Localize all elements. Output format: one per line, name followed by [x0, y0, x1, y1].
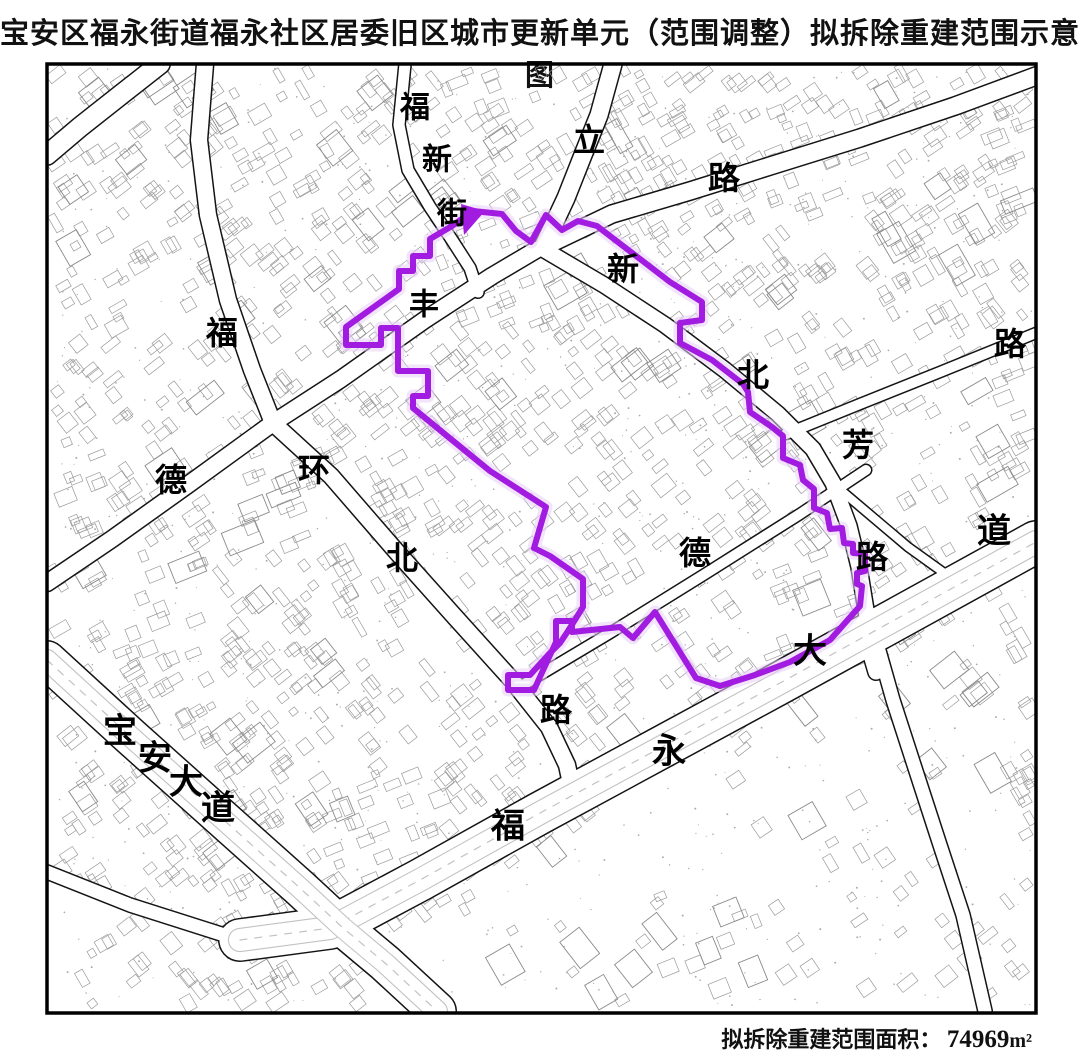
road-label-17: 福	[490, 808, 525, 846]
road-label-0: 福	[399, 92, 430, 125]
road-label-6: 北	[737, 357, 769, 393]
road-label-11: 德	[155, 462, 187, 498]
road-label-24: 道	[201, 790, 235, 828]
planning-map-page: 宝安区福永街道福永社区居委旧区城市更新单元（范围调整）拟拆除重建范围示意图 福新…	[0, 0, 1080, 1061]
road-label-21: 宝	[103, 713, 137, 751]
map-canvas: 福新街立路新北芳路丰福德环北路德路福永大道宝安大道	[0, 0, 1080, 1061]
road-label-15: 德	[679, 535, 711, 571]
road-label-19: 大	[793, 633, 827, 671]
road-se-road	[876, 640, 985, 1011]
cadastral-map: 福新街立路新北芳路丰福德环北路德路福永大道宝安大道	[0, 0, 1080, 1061]
road-label-20: 道	[977, 513, 1011, 551]
road-label-13: 北	[386, 540, 418, 576]
road-label-10: 福	[205, 315, 238, 351]
area-label: 拟拆除重建范围面积：	[721, 1027, 941, 1052]
road-label-16: 路	[856, 539, 889, 575]
road-label-14: 路	[540, 692, 573, 728]
area-value: 74969	[947, 1026, 1010, 1053]
road-label-7: 芳	[842, 427, 874, 463]
road-label-2: 街	[436, 198, 467, 231]
road-label-12: 环	[298, 452, 330, 488]
road-west-stub	[47, 872, 240, 940]
road-corner-road	[47, 64, 160, 155]
road-road-a	[543, 249, 876, 672]
road-label-5: 新	[607, 251, 639, 287]
area-note: 拟拆除重建范围面积： 74969m²	[332, 1022, 1032, 1054]
area-unit: m²	[1009, 1030, 1032, 1052]
road-swne-road	[47, 250, 536, 583]
road-label-3: 立	[573, 122, 605, 158]
road-label-18: 永	[652, 733, 686, 771]
road-label-22: 安	[138, 740, 172, 778]
map-content: 福新街立路新北芳路丰福德环北路德路福永大道宝安大道	[43, 63, 1040, 1013]
road-label-23: 大	[169, 764, 203, 802]
road-label-4: 路	[708, 160, 741, 196]
road-label-9: 丰	[409, 289, 439, 322]
road-label-8: 路	[994, 326, 1027, 362]
road-label-1: 新	[422, 144, 452, 177]
